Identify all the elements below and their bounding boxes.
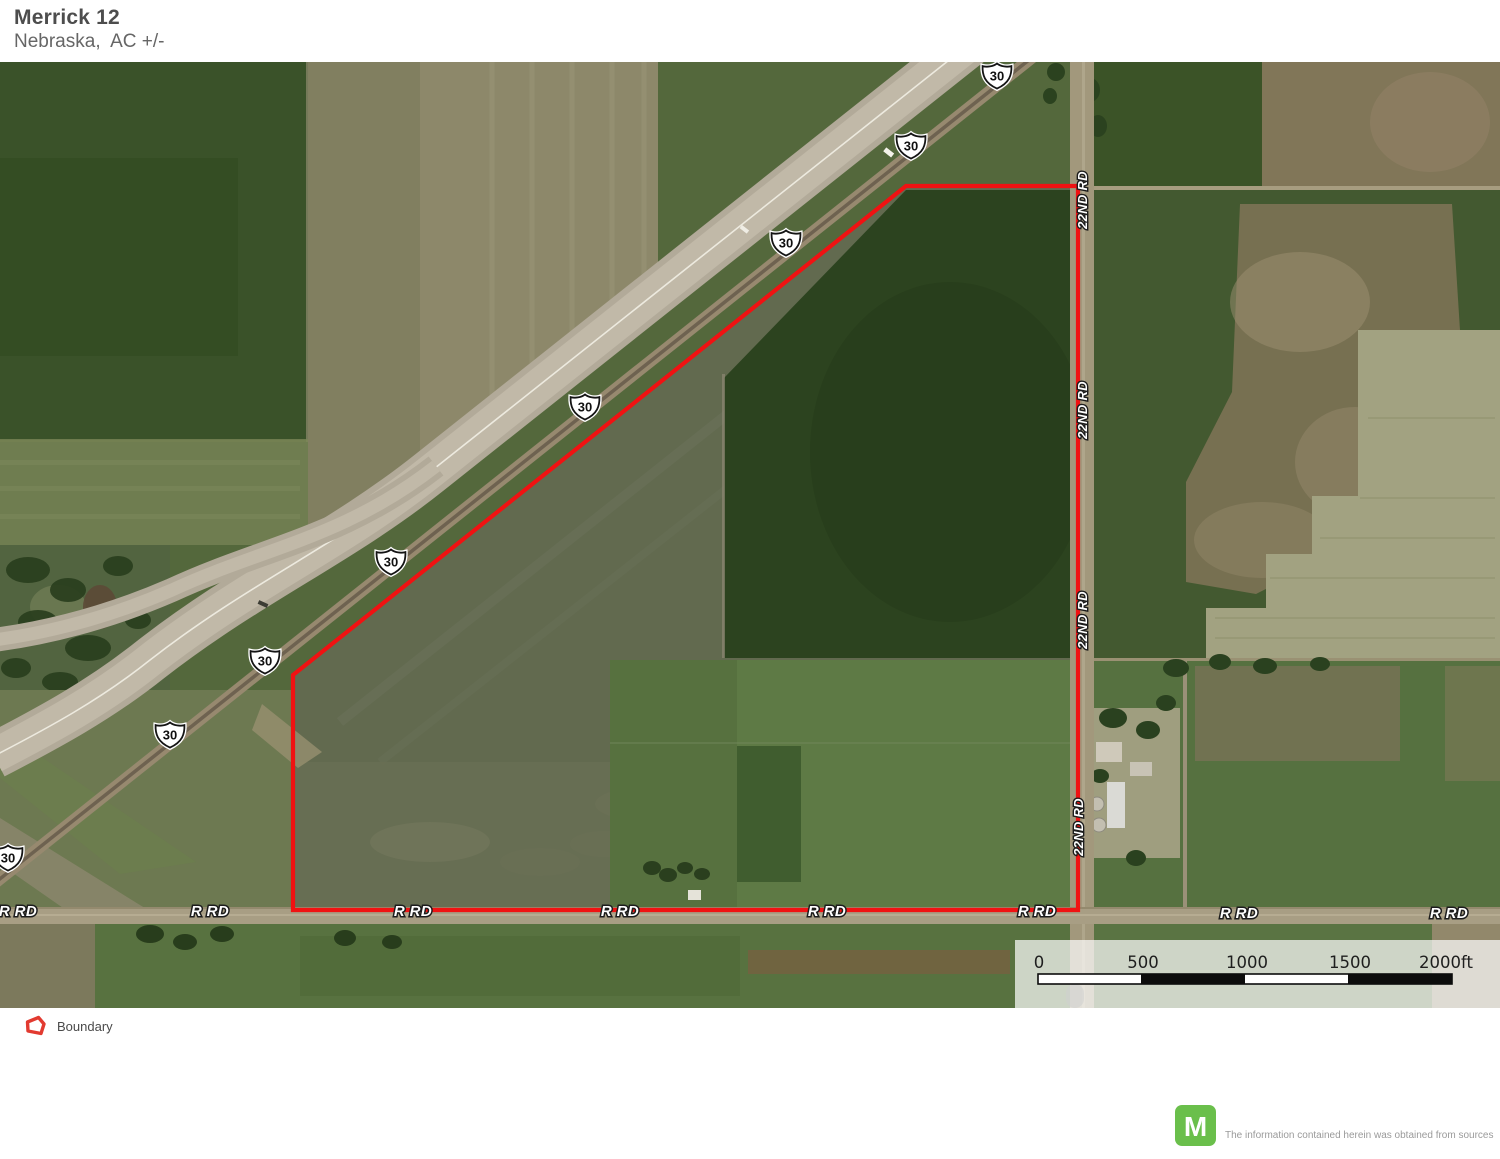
page-title: Merrick 12 [14, 6, 120, 30]
satellite-map: 30 30 30 30 30 30 [0, 62, 1500, 1008]
legend: Boundary [24, 1015, 113, 1037]
scale-bar: 0 500 1000 1500 2000ft [1015, 940, 1500, 1008]
mapright-logo-letter: M [1184, 1111, 1207, 1142]
road-label-r-rd: R RD [0, 903, 37, 920]
route-shield-label: 30 [779, 236, 793, 251]
route-shield-label: 30 [163, 728, 177, 743]
road-label-22nd-rd: 22ND RD [1075, 171, 1090, 230]
farmstead [1090, 695, 1180, 866]
scale-tick: 500 [1127, 953, 1159, 972]
route-shield-label: 30 [384, 555, 398, 570]
route-shield-label: 30 [990, 69, 1004, 84]
satellite-fields-east [1043, 62, 1500, 1008]
road-label-22nd-rd: 22ND RD [1071, 798, 1086, 857]
road-label-22nd-rd: 22ND RD [1075, 381, 1090, 440]
road-label-r-rd: R RD [601, 903, 639, 920]
route-shield-label: 30 [578, 400, 592, 415]
scale-tick: 2000ft [1419, 953, 1474, 972]
road-label-r-rd: R RD [191, 903, 229, 920]
disclaimer-text: The information contained herein was obt… [1225, 1105, 1500, 1159]
footer: M The information contained herein was o… [1175, 1105, 1500, 1159]
scale-tick: 1500 [1329, 953, 1371, 972]
route-shield-label: 30 [904, 139, 918, 154]
road-label-r-rd: R RD [808, 903, 846, 920]
page-subtitle: Nebraska, AC +/- [14, 31, 164, 53]
road-label-r-rd: R RD [394, 903, 432, 920]
road-label-22nd-rd: 22ND RD [1075, 591, 1090, 650]
fields-below-r-rd [0, 924, 1070, 1008]
road-label-r-rd: R RD [1220, 905, 1258, 922]
scale-tick: 0 [1034, 953, 1045, 972]
disclaimer-line: The information contained herein was obt… [1225, 1130, 1500, 1142]
mapright-logo: M [1175, 1105, 1216, 1146]
road-label-r-rd: R RD [1018, 903, 1056, 920]
map-export-page: Merrick 12 Nebraska, AC +/- [0, 0, 1500, 1159]
legend-item-label: Boundary [57, 1019, 113, 1034]
route-shield-label: 30 [1, 851, 15, 866]
map-watermark [1066, 984, 1084, 1008]
route-shield-label: 30 [258, 654, 272, 669]
road-label-r-rd: R RD [1430, 905, 1468, 922]
boundary-icon [24, 1015, 47, 1037]
scale-tick: 1000 [1226, 953, 1268, 972]
